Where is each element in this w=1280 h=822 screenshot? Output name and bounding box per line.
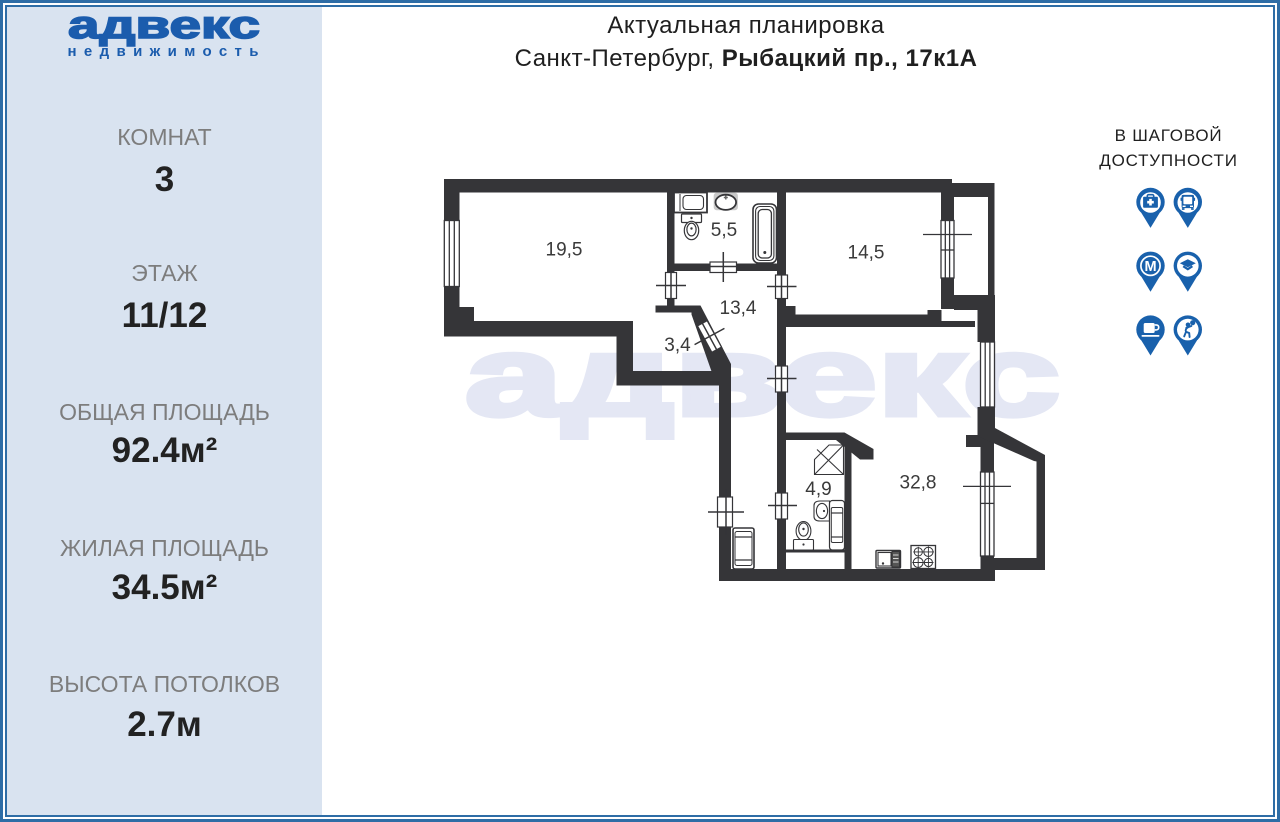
svg-text:14,5: 14,5 — [848, 243, 885, 264]
svg-text:3,4: 3,4 — [664, 335, 691, 356]
svg-text:32,8: 32,8 — [900, 473, 937, 494]
svg-text:М: М — [1144, 259, 1156, 275]
svg-text:19,5: 19,5 — [546, 240, 583, 261]
svg-text:13,4: 13,4 — [720, 298, 757, 319]
svg-text:5,5: 5,5 — [711, 220, 737, 241]
svg-text:адвекс: адвекс — [68, 4, 260, 47]
svg-text:4,9: 4,9 — [805, 479, 831, 500]
